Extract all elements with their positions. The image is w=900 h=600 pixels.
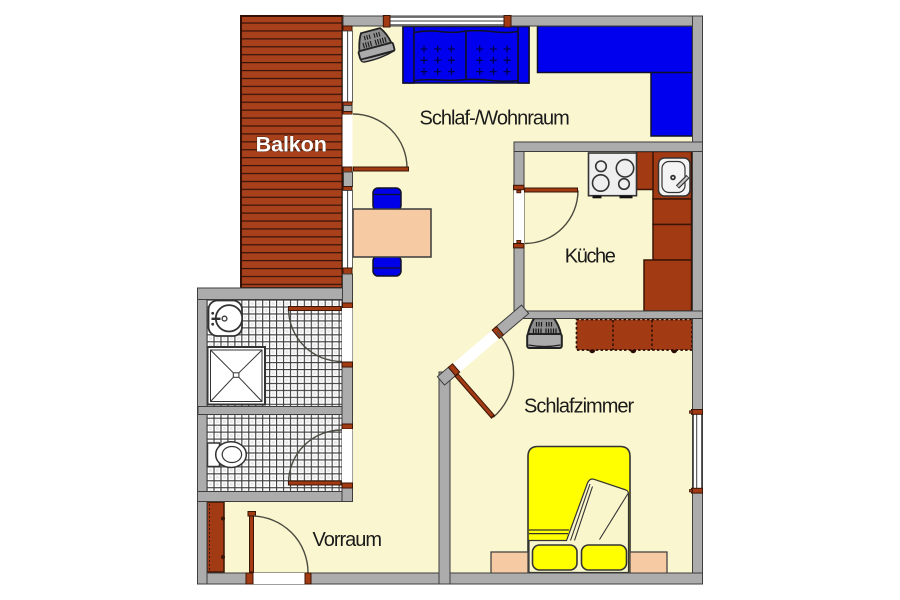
svg-text:Vorraum: Vorraum [313,529,382,551]
svg-text:Küche: Küche [565,246,616,268]
svg-text:Schlaf-/Wohnraum: Schlaf-/Wohnraum [420,108,570,130]
svg-text:Schlafzimmer: Schlafzimmer [524,395,634,417]
svg-text:Balkon: Balkon [256,132,327,157]
